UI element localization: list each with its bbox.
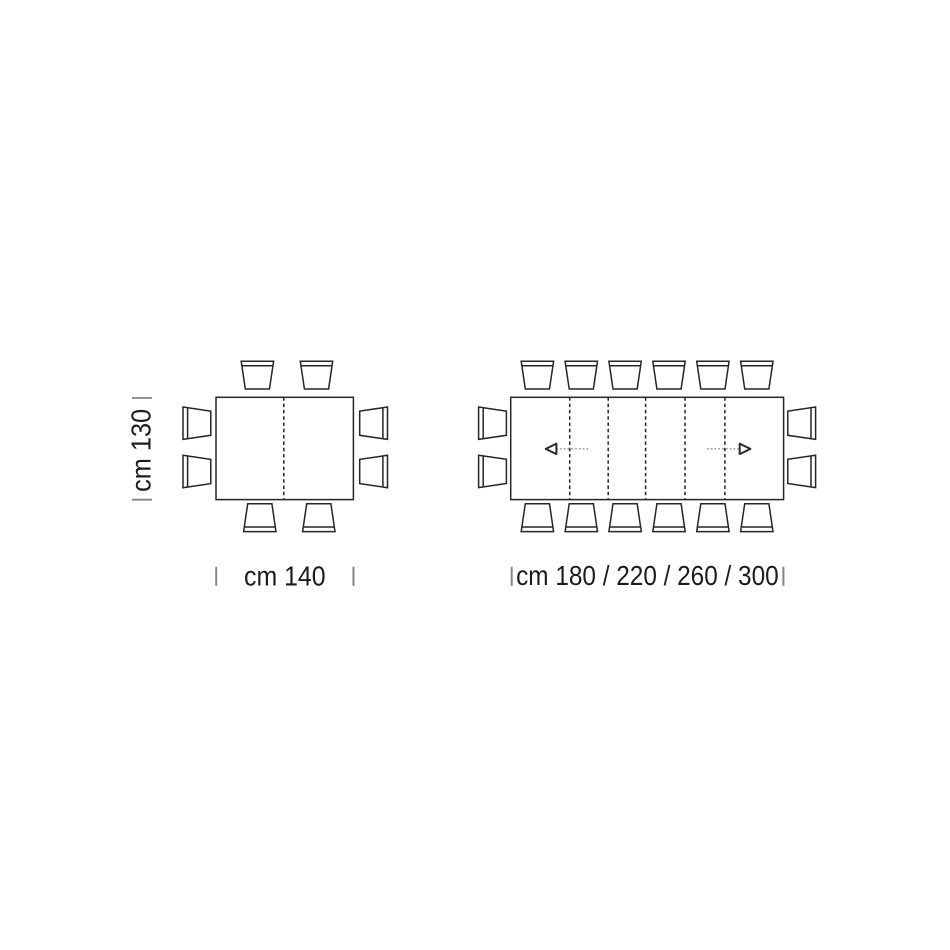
- svg-text:cm 140: cm 140: [244, 560, 326, 591]
- svg-text:cm 130: cm 130: [126, 409, 157, 492]
- svg-text:cm 180 / 220 / 260 / 300: cm 180 / 220 / 260 / 300: [516, 560, 779, 591]
